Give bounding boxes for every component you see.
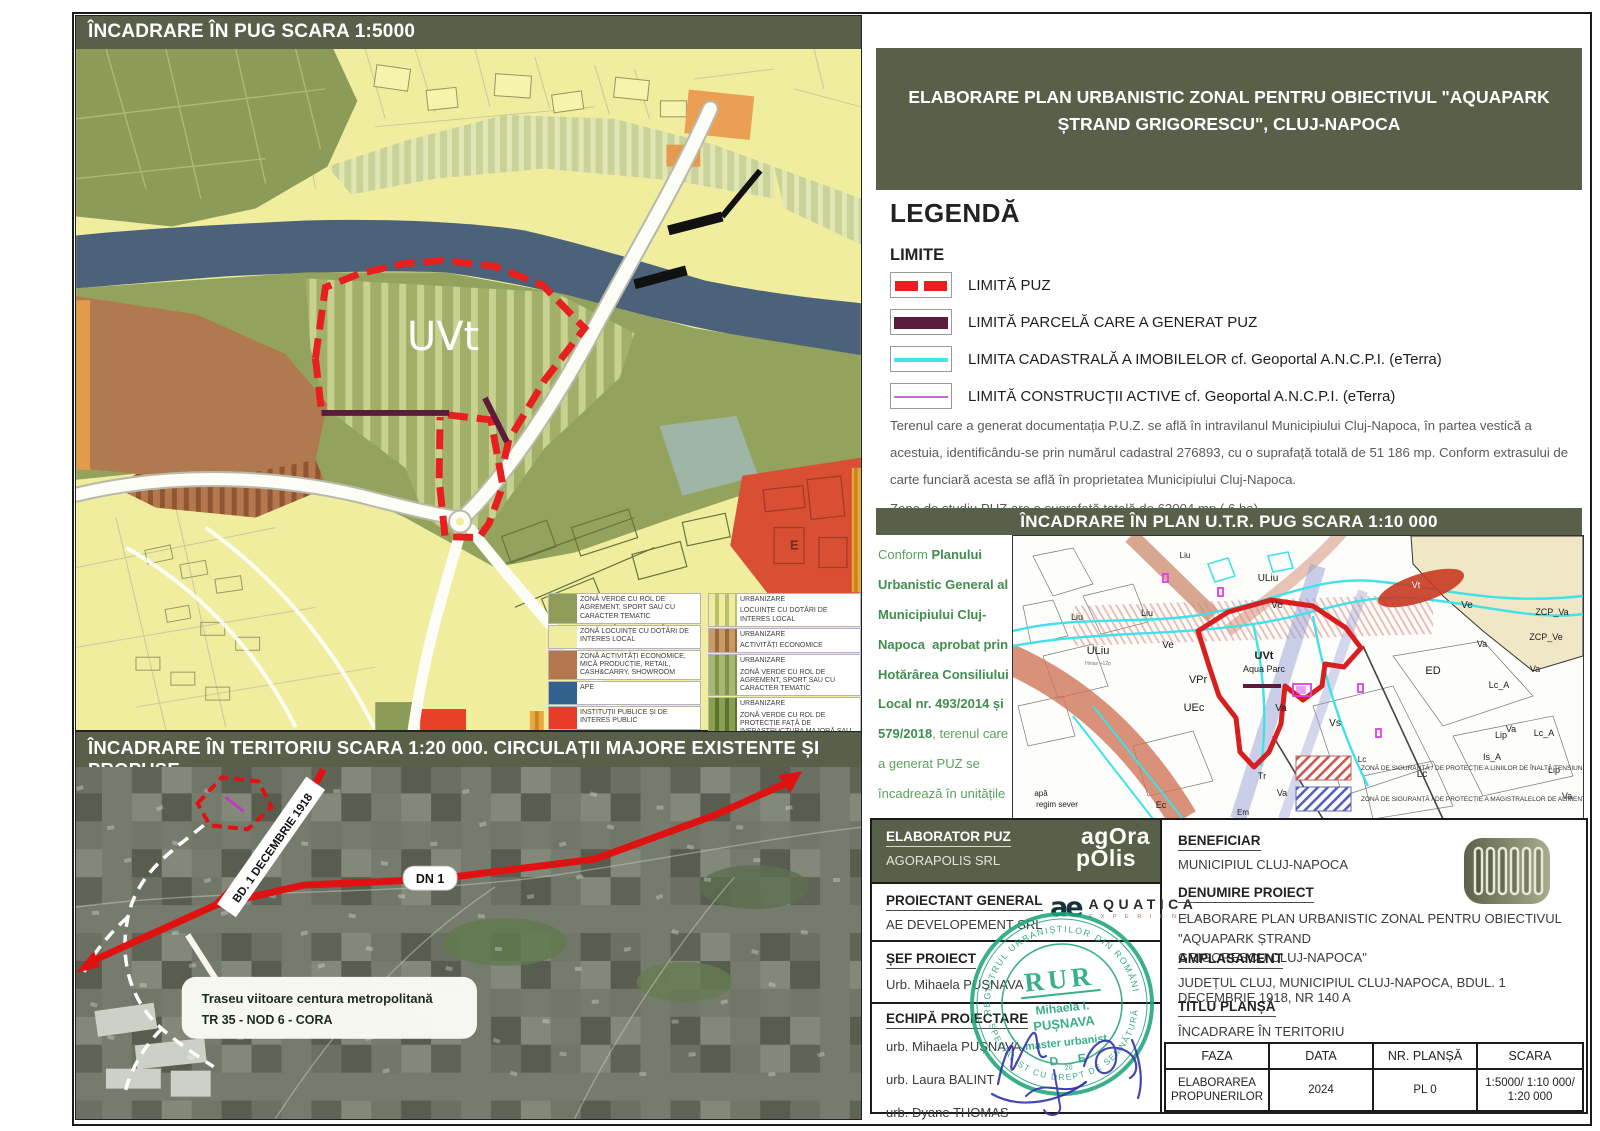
- utr-map-label: ED: [1425, 665, 1440, 677]
- hv-legend-swatch: [1296, 756, 1351, 780]
- utr-map-label: ULiu: [1087, 645, 1110, 657]
- table-value-cell: PL 0: [1374, 1070, 1478, 1110]
- beneficiar-value: MUNICIPIUL CLUJ-NAPOCA: [1178, 857, 1348, 872]
- mini-legend-label: INSTITUȚII PUBLICE ȘI DE INTERES PUBLIC: [577, 707, 700, 729]
- amplasament-label: AMPLASAMENT: [1178, 951, 1283, 969]
- cadastral-limit-swatch: [890, 346, 952, 372]
- utr-map-label: Lc_A: [1534, 728, 1555, 738]
- puz-limit-swatch: [890, 272, 952, 298]
- utr-map-label: Lc_A: [1489, 680, 1510, 690]
- svg-text:DN 1: DN 1: [416, 872, 444, 886]
- utr-map-label: Liu: [1180, 551, 1191, 560]
- legend-title: LEGENDĂ: [890, 198, 1020, 229]
- water-legend-swatch: [1296, 787, 1351, 811]
- amplasament-section: AMPLASAMENT JUDEȚUL CLUJ, MUNICIPIUL CLU…: [1178, 950, 1586, 1005]
- project-title-line2: ȘTRAND GRIGORESCU", CLUJ-NAPOCA: [876, 111, 1582, 138]
- elaborator-label: ELABORATOR PUZ: [886, 829, 1011, 847]
- utr-map-label: Va: [1530, 664, 1540, 674]
- table-header-cell: FAZA: [1166, 1044, 1270, 1070]
- mini-legend-row: URBANIZARELOCUINȚE CU DOTĂRI DE INTERES …: [708, 593, 861, 627]
- bottom-orange-block: [530, 711, 544, 730]
- mini-legend-row: ZONĂ VERDE CU ROL DE AGREMENT, SPORT SAU…: [548, 593, 701, 624]
- mini-legend-label: URBANIZAREZONĂ VERDE CU ROL DE AGREMENT,…: [737, 655, 860, 695]
- utr-map-label: Ve: [1162, 640, 1174, 651]
- utr-map-label: Vt: [1412, 580, 1421, 590]
- svg-text:TR 35 - NOD 6 - CORA: TR 35 - NOD 6 - CORA: [202, 1013, 333, 1027]
- mini-legend-row: URBANIZAREZONĂ VERDE CU ROL DE AGREMENT,…: [708, 654, 861, 696]
- east-orange-sliver: [852, 468, 861, 593]
- parcel-limit-swatch: [890, 309, 952, 335]
- mini-legend-swatch: [549, 626, 577, 648]
- table-header-cell: SCARA: [1478, 1044, 1582, 1070]
- utr-map-label: Va: [1277, 788, 1287, 798]
- mini-legend-swatch: [549, 594, 577, 623]
- legend-item-cadastral: LIMITA CADASTRALĂ A IMOBILELOR cf. Geopo…: [890, 346, 1590, 372]
- legend-items: LIMITĂ PUZ LIMITĂ PARCELĂ CARE A GENERAT…: [890, 272, 1590, 420]
- pug-mini-legend: ZONĂ VERDE CU ROL DE AGREMENT, SPORT SAU…: [548, 593, 862, 731]
- utr-map-label: Va: [1275, 703, 1287, 714]
- mini-legend-row: URBANIZAREACTIVITĂȚI ECONOMICE: [708, 628, 861, 654]
- dn1-road-label: DN 1: [403, 866, 457, 890]
- legend-item-label: LIMITĂ PARCELĂ CARE A GENERAT PUZ: [968, 314, 1257, 331]
- utr-map-label: ZCP_Va: [1535, 607, 1568, 617]
- utr-map-label: ULiu: [1258, 573, 1279, 584]
- mini-legend-row: APE: [548, 681, 701, 705]
- territory-map: BD. 1 DECEMBRIE 1918 DN 1 Traseu viitoar…: [76, 767, 861, 1119]
- mini-legend-swatch: [549, 682, 577, 704]
- utr-map-label: regim sever: [1036, 800, 1078, 809]
- utr-map-label: Ve: [1461, 600, 1473, 611]
- mini-legend-label: URBANIZAREACTIVITĂȚI ECONOMICE: [737, 629, 826, 653]
- territory-map-panel: ÎNCADRARE ÎN TERITORIU SCARA 1:20 000. C…: [75, 731, 862, 1120]
- titlu-plansa-label: TITLU PLANȘĂ: [1178, 999, 1276, 1017]
- project-title-line1: ELABORARE PLAN URBANISTIC ZONAL PENTRU O…: [876, 84, 1582, 111]
- legend-item-label: LIMITĂ PUZ: [968, 277, 1051, 294]
- svg-text:Traseu viitoare centura metrop: Traseu viitoare centura metropolitană: [202, 991, 434, 1006]
- mini-legend-swatch: [549, 651, 577, 680]
- mini-legend-swatch: [709, 655, 737, 695]
- titlu-plansa-section: TITLU PLANȘĂ ÎNCADRARE ÎN TERITORIU: [1178, 998, 1344, 1039]
- legend-item-label: LIMITA CADASTRALĂ A IMOBILELOR cf. Geopo…: [968, 351, 1442, 368]
- red-zone-label: E: [790, 538, 799, 553]
- project-title-banner: ELABORARE PLAN URBANISTIC ZONAL PENTRU O…: [876, 48, 1582, 190]
- signature-3: [1018, 1066, 1108, 1116]
- faza-table: FAZADATANR. PLANȘĂSCARAELABORAREA PROPUN…: [1164, 1042, 1584, 1112]
- utr-map-label: Is_A: [1483, 752, 1501, 762]
- utr-map-label: UVt: [1255, 650, 1274, 662]
- denumire-value-line1: ELABORARE PLAN URBANISTIC ZONAL PENTRU O…: [1178, 909, 1578, 948]
- table-header-cell: NR. PLANȘĂ: [1374, 1044, 1478, 1070]
- agorapolis-logo-line2: pOlis: [1076, 848, 1150, 870]
- mini-legend-label: ZONĂ VERDE CU ROL DE AGREMENT, SPORT SAU…: [577, 594, 700, 623]
- legend-item-constructions: LIMITĂ CONSTRUCȚII ACTIVE cf. Geoportal …: [890, 383, 1590, 409]
- mini-legend-label: URBANIZARELOCUINȚE CU DOTĂRI DE INTERES …: [737, 594, 860, 626]
- legend-subtitle: LIMITE: [890, 246, 944, 265]
- utr-note-segment: Conform: [878, 547, 931, 562]
- table-value-cell: 2024: [1270, 1070, 1374, 1110]
- roundabout-center: [456, 518, 464, 526]
- utr-map: ULiuHmax +12pLiuLiuULiuLiuVPrUEcVeVeVeVt…: [1012, 535, 1584, 820]
- mini-legend-label: APE: [577, 682, 597, 704]
- legend-item-puz: LIMITĂ PUZ: [890, 272, 1590, 298]
- mini-legend-label: ZONĂ LOCUINȚE CU DOTĂRI DE INTERES LOCAL: [577, 626, 700, 648]
- mini-legend-row: ZONĂ LOCUINȚE CU DOTĂRI DE INTERES LOCAL: [548, 625, 701, 649]
- site-description-p1: Terenul care a generat documentația P.U.…: [890, 412, 1584, 493]
- utr-map-label: VPr: [1189, 674, 1208, 686]
- table-value-cell: 1:5000/ 1:10 000/ 1:20 000: [1478, 1070, 1582, 1110]
- plan-sheet: ÎNCADRARE ÎN PUG SCARA 1:5000: [0, 0, 1600, 1131]
- elaborator-band: ELABORATOR PUZ AGORAPOLIS SRL agOra pOli…: [872, 820, 1160, 884]
- utr-panel-header: ÎNCADRARE ÎN PLAN U.T.R. PUG SCARA 1:10 …: [876, 508, 1582, 535]
- utr-map-label: apă: [1034, 789, 1048, 798]
- title-block: ELABORATOR PUZ AGORAPOLIS SRL agOra pOli…: [870, 818, 1588, 1114]
- beneficiar-label: BENEFICIAR: [1178, 833, 1261, 851]
- mini-legend-swatch: [709, 629, 737, 653]
- titlu-plansa-value: ÎNCADRARE ÎN TERITORIU: [1178, 1024, 1344, 1039]
- bottom-red-block: [420, 709, 466, 730]
- pug-map-panel: ÎNCADRARE ÎN PUG SCARA 1:5000: [75, 15, 862, 731]
- utr-map-label: Aqua Parc: [1243, 664, 1286, 674]
- utr-map-label: Va: [1477, 639, 1487, 649]
- pug-panel-header: ÎNCADRARE ÎN PUG SCARA 1:5000: [76, 16, 861, 49]
- utr-map-label: ZCP_Ve: [1529, 632, 1563, 642]
- sef-proiect-label: ȘEF PROIECT: [886, 951, 976, 969]
- mini-legend-label: ZONĂ ACTIVITĂȚI ECONOMICE, MICĂ PRODUCȚI…: [577, 651, 700, 680]
- site-label: UVt: [407, 314, 479, 360]
- utr-map-label: Liu: [1141, 608, 1153, 618]
- legend-item-parcel: LIMITĂ PARCELĂ CARE A GENERAT PUZ: [890, 309, 1590, 335]
- utr-map-label: Hmax +12p: [1085, 661, 1111, 667]
- utr-note-segment: , terenul care a generat PUZ se încadrea…: [878, 726, 1012, 831]
- utr-note: Conform Planului Urbanistic General al M…: [878, 540, 1010, 818]
- utr-note-segment: Planului Urbanistic General al Municipiu…: [878, 547, 1012, 741]
- agorapolis-logo: agOra pOlis: [1076, 826, 1150, 870]
- water-legend-label: ZONĂ DE SIGURANȚĂ / DE PROTECȚIE A MAGIS…: [1361, 794, 1584, 803]
- utr-map-label: Vs: [1329, 718, 1341, 729]
- utr-map-label: Liu: [1071, 612, 1083, 622]
- orange-strip: [76, 300, 90, 470]
- mini-legend-striped-column: URBANIZARELOCUINȚE CU DOTĂRI DE INTERES …: [708, 593, 861, 731]
- denumire-label: DENUMIRE PROIECT: [1178, 885, 1314, 903]
- mini-legend-row: INSTITUȚII PUBLICE ȘI DE INTERES PUBLIC: [548, 706, 701, 730]
- beneficiar-section: BENEFICIAR MUNICIPIUL CLUJ-NAPOCA: [1178, 832, 1348, 872]
- utr-map-label: UEc: [1184, 702, 1205, 714]
- table-header-cell: DATA: [1270, 1044, 1374, 1070]
- table-value-cell: ELABORAREA PROPUNERILOR: [1166, 1070, 1270, 1110]
- mini-legend-solid-column: ZONĂ VERDE CU ROL DE AGREMENT, SPORT SAU…: [548, 593, 701, 731]
- mini-legend-swatch: [709, 594, 737, 626]
- utr-map-label: Va: [1506, 724, 1516, 734]
- utr-map-label: Lc: [1358, 755, 1366, 764]
- elaborator-value: AGORAPOLIS SRL: [886, 853, 1011, 868]
- hv-legend-label: ZONĂ DE SIGURANȚĂ / DE PROTECȚIE A LINII…: [1361, 763, 1584, 772]
- utr-map-label: Ve: [1271, 600, 1283, 611]
- constructions-limit-swatch: [890, 383, 952, 409]
- mini-legend-swatch: [549, 707, 577, 729]
- mini-legend-row: ZONĂ ACTIVITĂȚI ECONOMICE, MICĂ PRODUCȚI…: [548, 650, 701, 681]
- utr-map-label: Ec: [1156, 800, 1167, 810]
- utr-map-label: Em: [1237, 808, 1249, 817]
- territory-panel-header: ÎNCADRARE ÎN TERITORIU SCARA 1:20 000. C…: [76, 732, 861, 767]
- utr-map-label: Tr: [1258, 771, 1266, 781]
- legend-item-label: LIMITĂ CONSTRUCȚII ACTIVE cf. Geoportal …: [968, 388, 1395, 405]
